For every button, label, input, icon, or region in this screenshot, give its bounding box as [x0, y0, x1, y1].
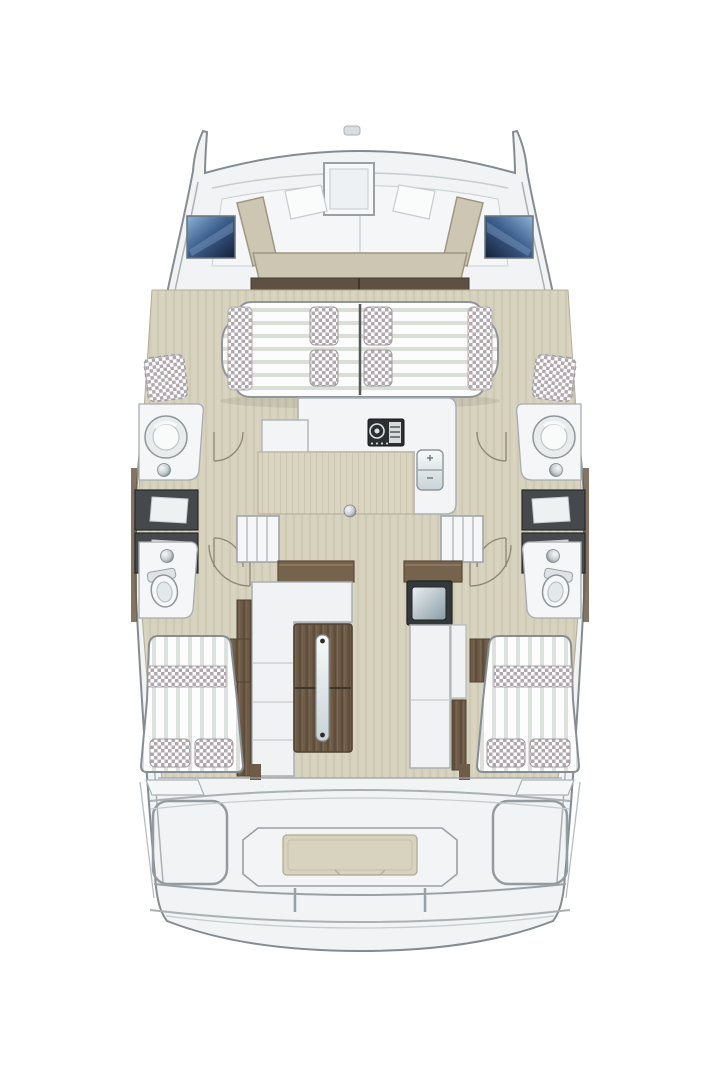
aft-cockpit	[150, 778, 570, 928]
side-deck-cushion	[143, 354, 188, 403]
galley-side-counter	[262, 420, 308, 452]
bed-pillow	[150, 739, 190, 767]
sunbed-pillow	[310, 350, 338, 386]
starboard-forward-elements	[393, 185, 533, 266]
head-sink-fitting	[161, 550, 174, 563]
foredeck-hatch	[324, 163, 374, 215]
sunbed-mattress	[222, 302, 498, 397]
port-hull-details	[131, 354, 279, 898]
crossbeam	[251, 278, 469, 290]
starboard-gunwale-line	[522, 182, 577, 882]
bed-mattress	[141, 636, 243, 772]
stove	[368, 419, 404, 446]
bed-pillow	[195, 739, 233, 767]
salon	[237, 561, 466, 776]
floor-fitting	[344, 505, 356, 517]
sunbed-shadow	[220, 393, 500, 409]
double-sink	[417, 450, 443, 490]
wardrobe	[225, 639, 250, 682]
forward-vanity-counter	[139, 404, 203, 480]
stern-hull-line	[140, 782, 154, 898]
dining-table	[294, 624, 352, 752]
oak-worktop	[258, 452, 414, 514]
forward-sunbed	[220, 302, 500, 409]
hull-wood-trim	[131, 468, 137, 622]
bed-foot-trim	[250, 764, 261, 780]
companionway-stairs	[237, 516, 279, 562]
galley	[258, 398, 456, 517]
washbasin-glare	[155, 423, 176, 428]
catamaran-floorplan-page	[0, 0, 720, 1080]
storage-module	[407, 581, 452, 625]
washbasin	[145, 416, 187, 458]
transom-arc-upper	[154, 884, 566, 895]
aft-cockpit-seat	[153, 801, 227, 884]
bench-end-panel	[451, 625, 466, 698]
cabinet-port	[278, 561, 354, 582]
side-bench	[410, 625, 450, 768]
aft-head-counter	[139, 542, 197, 618]
port-window-glare	[189, 222, 233, 256]
port-backrest-panel	[285, 185, 327, 219]
sunbed-side-bolster-starboard	[468, 307, 492, 390]
settee-backrest-trim	[237, 600, 251, 776]
anchor-fitting	[344, 126, 360, 135]
sunbed-pillow	[364, 350, 392, 386]
forward-cockpit-floor	[212, 186, 508, 267]
port-aft-cabin-bed	[141, 636, 261, 780]
cockpit-seat-front-line	[150, 790, 570, 801]
washbasin-bowl	[153, 424, 179, 450]
foredeck-arc	[212, 173, 508, 188]
port-window	[187, 216, 235, 258]
port-forward-elements	[187, 185, 327, 266]
drain-fitting	[158, 464, 171, 477]
door-arc	[214, 432, 243, 461]
forward-bench-seat	[253, 253, 467, 279]
hull-hatch	[135, 490, 198, 530]
transom-bottom-line	[166, 916, 554, 928]
tender-platform	[243, 828, 457, 886]
port-bench-arm	[237, 197, 277, 266]
bench-wood-trim	[452, 700, 466, 770]
toilet	[147, 568, 181, 609]
galley-counter	[298, 398, 456, 514]
door-arc	[209, 545, 250, 586]
door-arc	[214, 538, 243, 567]
floorplan-drawing	[0, 0, 720, 1080]
cockpit-seat-front-line2	[150, 798, 570, 809]
sunbed-pillow	[364, 307, 392, 345]
hull-silhouette	[135, 131, 586, 951]
bed-checker-band	[148, 666, 226, 687]
transom-arc-lower	[150, 910, 570, 922]
sunbed-side-bolster-port	[228, 307, 252, 390]
stern-step	[146, 780, 204, 795]
cabinet-starboard	[404, 561, 462, 582]
hull-hatch	[135, 533, 198, 573]
interior-floor	[136, 290, 584, 778]
sunbed-pillow	[310, 307, 338, 345]
starboard-hull-details	[441, 354, 589, 898]
l-settee	[252, 582, 352, 776]
starboard-aft-cabin-bed	[459, 636, 579, 780]
port-gunwale-line	[143, 182, 198, 882]
